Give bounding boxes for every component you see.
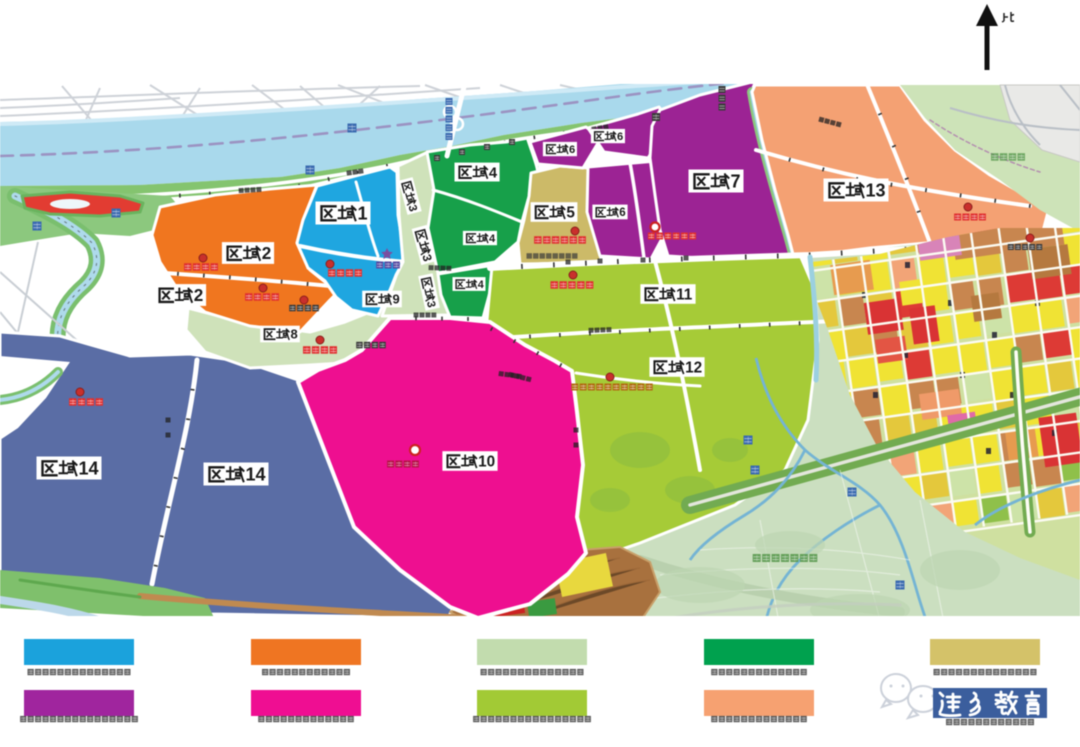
svg-text:4: 4 [489,165,498,181]
svg-text:4: 4 [489,233,496,245]
svg-text:11: 11 [676,287,693,304]
svg-text:9: 9 [392,292,399,307]
svg-text:6: 6 [569,144,575,156]
svg-text:6: 6 [619,207,625,219]
svg-text:5: 5 [566,205,575,222]
svg-text:2: 2 [194,286,204,305]
svg-text:4: 4 [478,279,484,291]
svg-text:12: 12 [685,360,702,377]
svg-text:14: 14 [246,465,266,485]
svg-text:13: 13 [866,181,886,201]
svg-text:14: 14 [79,459,99,479]
svg-text:1: 1 [358,204,368,224]
svg-text:2: 2 [262,244,272,263]
svg-text:8: 8 [290,327,297,342]
svg-text:6: 6 [617,131,623,143]
svg-text:7: 7 [731,172,741,192]
svg-text:10: 10 [478,454,495,471]
